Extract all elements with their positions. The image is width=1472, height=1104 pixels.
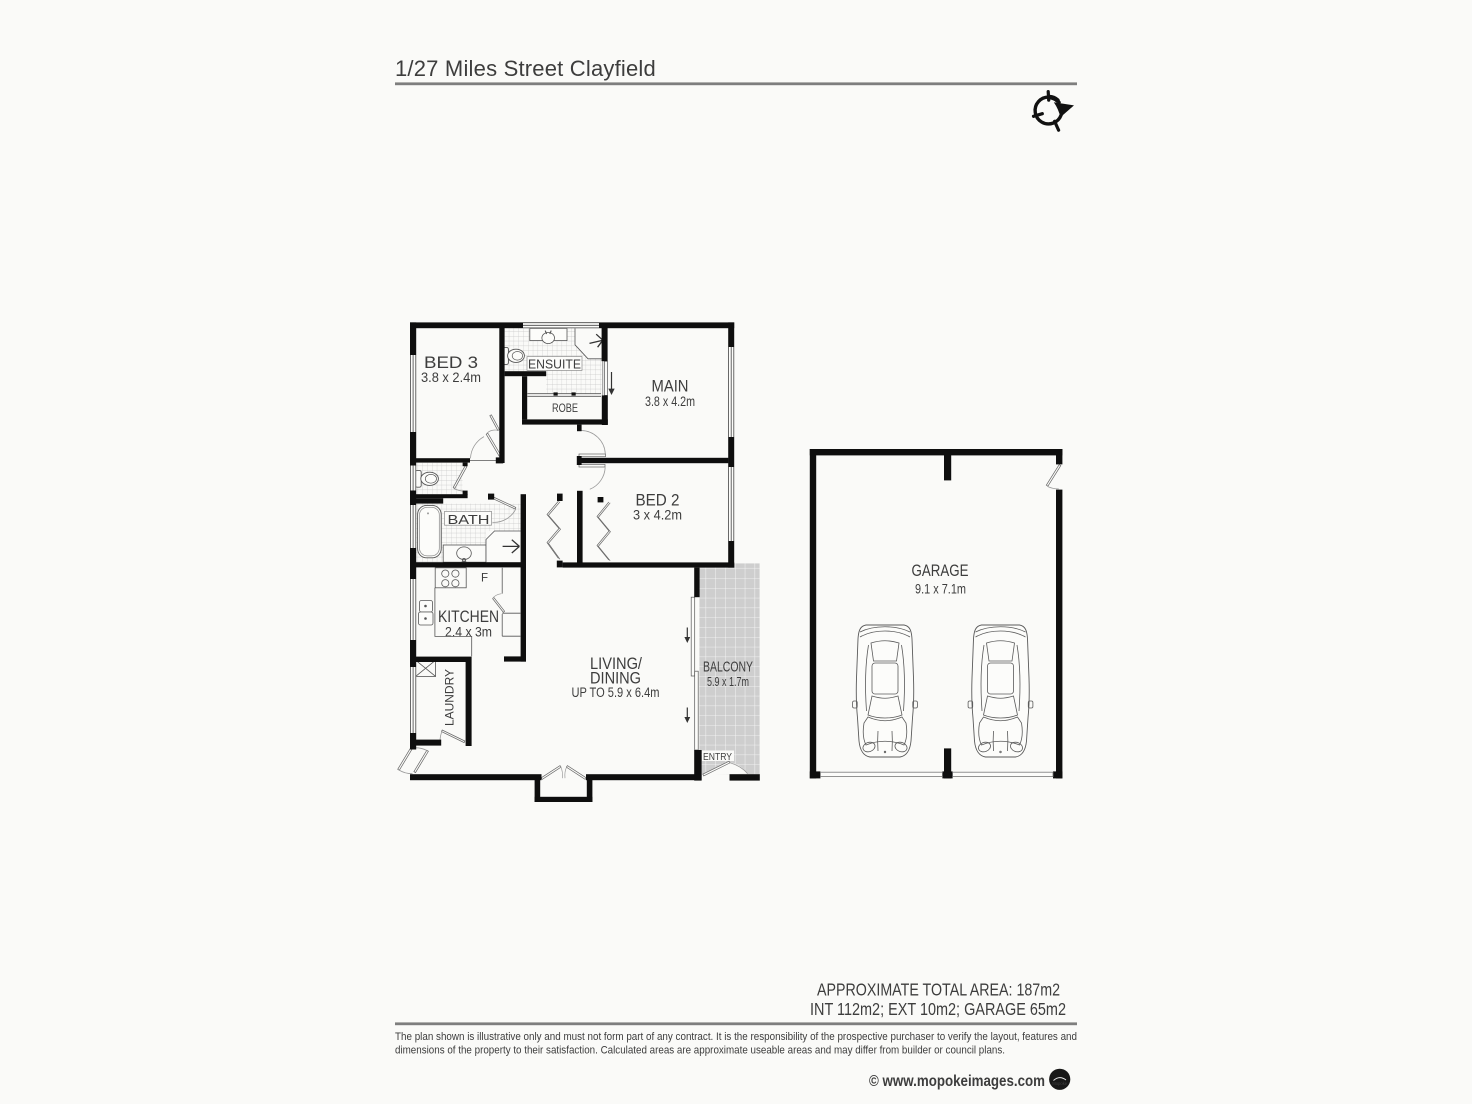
svg-text:5.9 x 1.7m: 5.9 x 1.7m — [707, 674, 749, 689]
svg-text:LAUNDRY: LAUNDRY — [443, 669, 457, 726]
svg-text:ROBE: ROBE — [552, 403, 578, 415]
svg-text:dimensions of the property to: dimensions of the property to their sati… — [395, 1045, 1005, 1057]
svg-text:The plan shown is illustrative: The plan shown is illustrative only and … — [395, 1031, 1077, 1043]
svg-text:2.4 x 3m: 2.4 x 3m — [445, 625, 492, 640]
svg-text:3.8 x 2.4m: 3.8 x 2.4m — [421, 370, 481, 385]
svg-text:ENSUITE: ENSUITE — [528, 357, 581, 372]
svg-text:Mopoke: Mopoke — [1052, 1081, 1068, 1086]
svg-text:BATH: BATH — [448, 512, 490, 527]
svg-text:GARAGE: GARAGE — [912, 562, 969, 580]
svg-text:MAIN: MAIN — [652, 378, 689, 396]
svg-text:INT 112m2; EXT 10m2; GARAGE 65: INT 112m2; EXT 10m2; GARAGE 65m2 — [810, 999, 1066, 1019]
svg-text:APPROXIMATE TOTAL AREA: 187m2: APPROXIMATE TOTAL AREA: 187m2 — [817, 980, 1060, 1000]
svg-text:1/27 Miles Street Clayfield: 1/27 Miles Street Clayfield — [395, 56, 656, 81]
svg-text:UP TO 5.9 x 6.4m: UP TO 5.9 x 6.4m — [572, 685, 660, 700]
svg-text:KITCHEN: KITCHEN — [438, 608, 499, 626]
svg-text:3 x 4.2m: 3 x 4.2m — [633, 508, 682, 523]
svg-text:F: F — [481, 573, 488, 585]
svg-text:© www.mopokeimages.com: © www.mopokeimages.com — [869, 1073, 1045, 1090]
svg-text:3.8 x 4.2m: 3.8 x 4.2m — [645, 394, 695, 409]
svg-text:9.1 x 7.1m: 9.1 x 7.1m — [915, 582, 966, 597]
svg-text:ENTRY: ENTRY — [703, 751, 732, 763]
